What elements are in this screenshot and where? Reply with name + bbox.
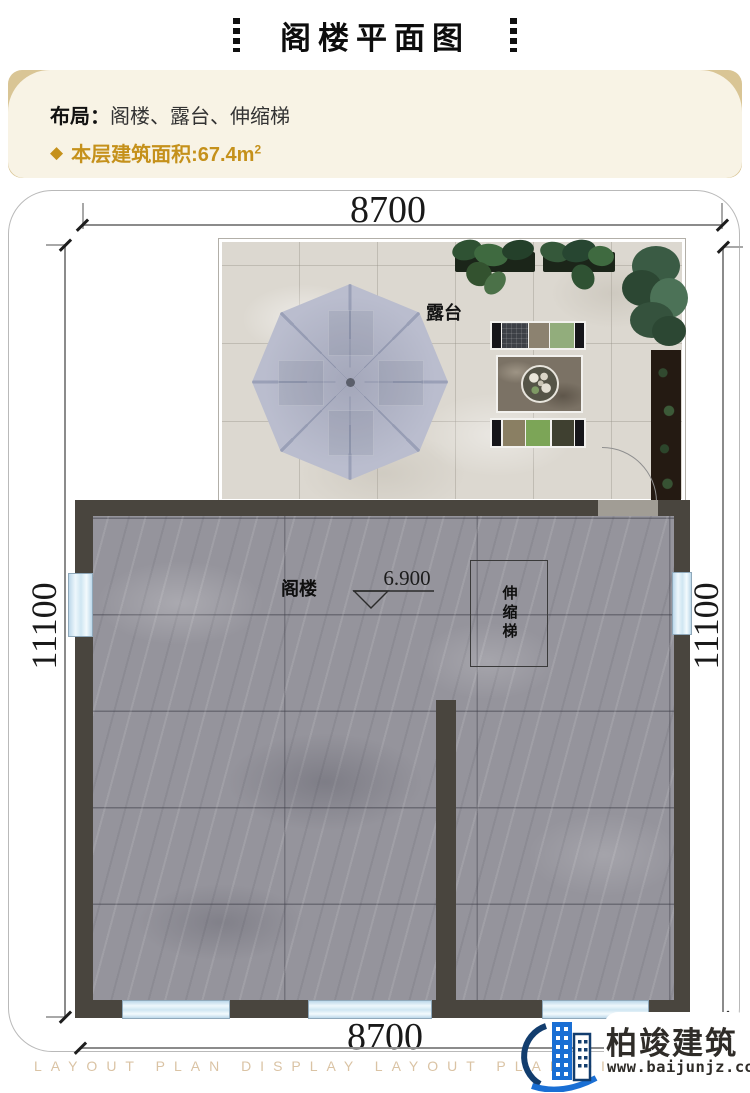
bench-arm bbox=[575, 420, 584, 446]
info-box: 布局：阁楼、露台、伸缩梯 ◆ 本层建筑面积:67.4m2 bbox=[8, 70, 742, 178]
window-left bbox=[68, 573, 93, 637]
layout-line: 布局：阁楼、露台、伸缩梯 bbox=[50, 100, 290, 129]
info-box-surface: 布局：阁楼、露台、伸缩梯 ◆ 本层建筑面积:67.4m2 bbox=[8, 70, 742, 178]
brand-website: www.baijunjz.com bbox=[607, 1058, 750, 1076]
elevation-value: 6.900 bbox=[366, 566, 448, 591]
window-right bbox=[672, 572, 692, 635]
chair-ghost bbox=[328, 310, 374, 356]
stone-table bbox=[496, 355, 583, 413]
window-bottom-2 bbox=[308, 1000, 432, 1019]
diamond-icon: ◆ bbox=[50, 144, 63, 161]
dimension-bottom: 8700 bbox=[337, 1015, 433, 1059]
bench-cushion bbox=[552, 420, 574, 446]
bench-cushion bbox=[550, 323, 573, 348]
bench-arm bbox=[492, 420, 501, 446]
tree-foliage bbox=[652, 316, 686, 346]
layout-value: 阁楼、露台、伸缩梯 bbox=[110, 106, 290, 128]
terrace-label: 露台 bbox=[426, 299, 462, 325]
brand-name: 柏竣建筑 bbox=[606, 1018, 738, 1063]
umbrella-pole bbox=[346, 378, 355, 387]
chair-ghost bbox=[278, 360, 324, 406]
hedge-strip bbox=[651, 350, 681, 502]
retractable-ladder-box: 伸缩梯 bbox=[470, 560, 548, 667]
patio-umbrella bbox=[252, 284, 448, 480]
chair-ghost bbox=[378, 360, 424, 406]
bench-cushion bbox=[503, 420, 525, 446]
bench-cushion bbox=[529, 323, 549, 348]
bench-arm bbox=[575, 323, 584, 348]
page-title: 阁楼平面图 bbox=[280, 13, 470, 58]
ladder-label: 伸缩梯 bbox=[499, 585, 520, 642]
layout-label: 布局： bbox=[50, 106, 110, 128]
attic-label: 阁楼 bbox=[281, 575, 317, 601]
extension-line bbox=[723, 246, 743, 248]
buildings-icon bbox=[516, 1014, 606, 1092]
floor-plan-page: 阁楼平面图 布局：阁楼、露台、伸缩梯 ◆ 本层建筑面积:67.4m2 8700 … bbox=[0, 0, 750, 1093]
bench bbox=[490, 321, 586, 350]
chair-ghost bbox=[328, 410, 374, 456]
page-header: 阁楼平面图 bbox=[0, 12, 750, 58]
area-line: ◆ 本层建筑面积:67.4m2 bbox=[50, 138, 261, 167]
dimension-left: 11100 bbox=[23, 578, 65, 674]
area-text: 本层建筑面积:67.4m2 bbox=[71, 138, 261, 167]
dashed-bar-icon bbox=[233, 18, 240, 52]
dimension-line-top bbox=[82, 224, 722, 226]
bench-cushion bbox=[526, 420, 550, 446]
door-opening bbox=[598, 500, 658, 516]
bench bbox=[490, 418, 586, 448]
bench-cushion bbox=[502, 323, 527, 348]
elevation-marker-icon bbox=[352, 589, 436, 611]
table-planter bbox=[521, 365, 559, 403]
partition-wall bbox=[436, 700, 456, 1018]
window-bottom-1 bbox=[122, 1000, 230, 1019]
area-superscript: 2 bbox=[254, 142, 261, 156]
dashed-bar-icon bbox=[510, 18, 517, 52]
bench-arm bbox=[492, 323, 501, 348]
